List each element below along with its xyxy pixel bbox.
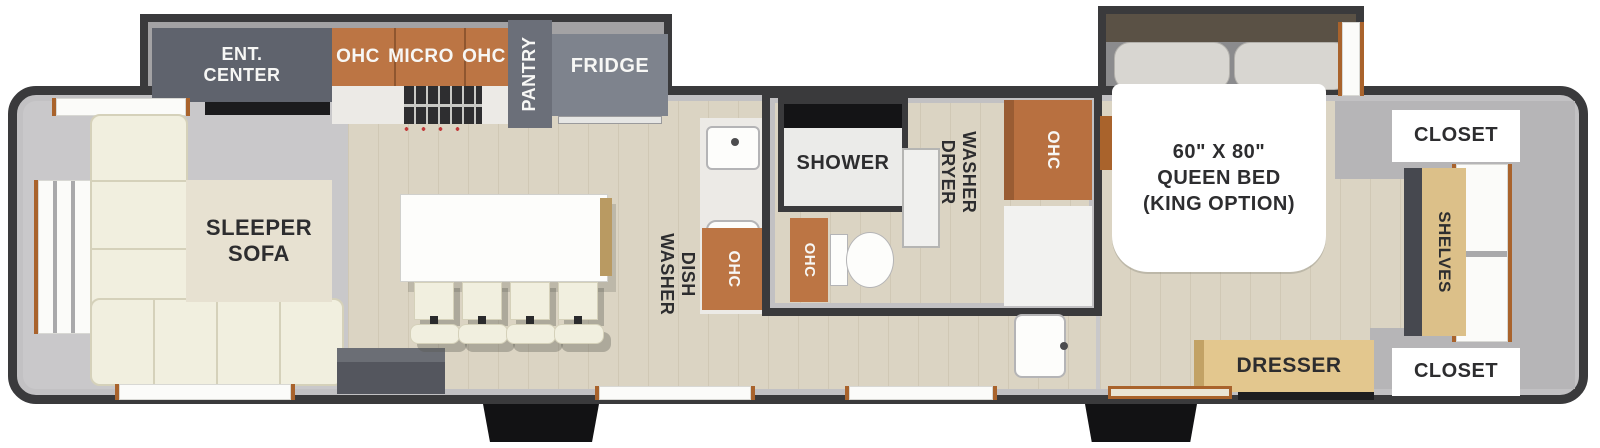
- floorplan: ENT. CENTER OHC MICRO OHC PANTRY FRIDGE …: [0, 0, 1600, 448]
- closet-top: CLOSET: [1392, 110, 1520, 162]
- stove-icon: [404, 84, 482, 124]
- island-wood-edge: [600, 198, 612, 276]
- dishwasher-label-area: DISH WASHER: [636, 228, 718, 320]
- stove-knobs: [398, 126, 468, 132]
- bar-stool: [556, 282, 606, 344]
- toilet-icon: [830, 232, 892, 288]
- window-icon: [34, 180, 96, 334]
- tv-icon: [205, 102, 330, 115]
- kitchen-sink-icon: [706, 126, 760, 170]
- closet-bottom: CLOSET: [1392, 348, 1520, 396]
- ent-center-label: ENT. CENTER: [152, 28, 332, 102]
- shower-head-wall: [784, 104, 902, 128]
- dresser-label: DRESSER: [1204, 340, 1374, 392]
- fridge-label: FRIDGE: [552, 34, 668, 100]
- shower: SHOWER: [778, 98, 908, 212]
- queen-bed-label: 60" X 80" QUEEN BED (KING OPTION): [1112, 84, 1326, 272]
- shelves-back-panel: [1404, 168, 1422, 336]
- fridge: FRIDGE: [552, 34, 668, 116]
- closet-top-label: CLOSET: [1392, 110, 1520, 162]
- shelves: SHELVES: [1422, 168, 1466, 336]
- bedroom-entry-rug: [1108, 386, 1232, 399]
- window-icon: [845, 386, 997, 400]
- sleeper-sofa-bed-footprint: SLEEPER SOFA: [186, 180, 332, 302]
- bathroom-overhead-cabinet: OHC: [790, 218, 828, 302]
- headboard: [1106, 14, 1356, 42]
- dish-washer-label: DISH WASHER: [656, 233, 698, 315]
- ohc-right-label: OHC: [462, 46, 506, 68]
- pillow: [1234, 42, 1350, 90]
- ohc-bathroom-label: OHC: [790, 218, 828, 302]
- closet-bottom-label: CLOSET: [1392, 348, 1520, 396]
- pillow: [1114, 42, 1230, 90]
- end-table: [337, 348, 445, 394]
- kitchen-island: [400, 194, 608, 282]
- bar-stool: [460, 282, 510, 344]
- micro-label: MICRO: [388, 46, 454, 68]
- washer-dryer-label-area: WASHER DRYER: [912, 120, 1004, 224]
- ohc-vanity-label: OHC: [1014, 100, 1092, 200]
- entertainment-center: ENT. CENTER: [152, 28, 332, 102]
- sleeper-sofa-bottom-section: [90, 298, 344, 386]
- vanity-overhead-cabinet: OHC: [1004, 100, 1092, 200]
- bar-stool: [508, 282, 558, 344]
- dresser: DRESSER: [1194, 340, 1374, 392]
- window-icon: [595, 386, 755, 400]
- pantry: PANTRY: [508, 20, 552, 128]
- overhead-cabinets-micro: OHC MICRO OHC: [332, 28, 510, 86]
- vanity-counter: [1004, 206, 1092, 306]
- window-icon: [1338, 22, 1364, 96]
- window-icon: [115, 384, 295, 400]
- bar-stool: [412, 282, 462, 344]
- entry-step: [1085, 404, 1197, 442]
- pantry-label: PANTRY: [508, 20, 552, 128]
- fridge-front-trim: [558, 116, 662, 124]
- sleeper-sofa-label: SLEEPER SOFA: [186, 180, 332, 302]
- queen-bed: 60" X 80" QUEEN BED (KING OPTION): [1112, 84, 1326, 272]
- dresser-mat: [1238, 392, 1374, 400]
- shelves-label: SHELVES: [1422, 168, 1466, 336]
- vanity-sink-icon: [1014, 314, 1066, 378]
- ohc-left-label: OHC: [336, 46, 380, 68]
- entry-step: [483, 404, 599, 442]
- washer-dryer-label: WASHER DRYER: [937, 126, 979, 218]
